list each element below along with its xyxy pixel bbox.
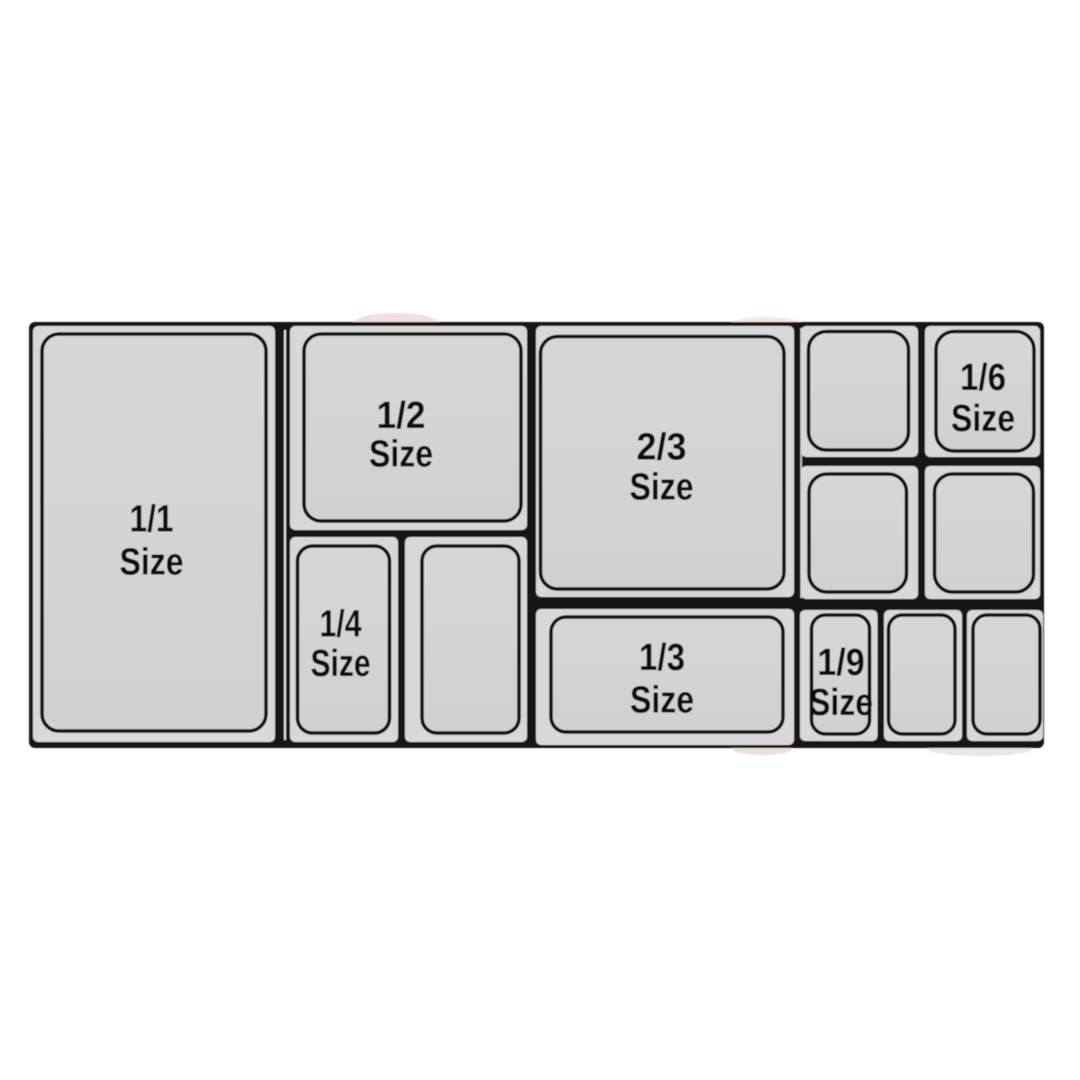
svg-text:Size: Size — [630, 467, 694, 509]
svg-text:1/9: 1/9 — [817, 642, 865, 684]
svg-text:Size: Size — [809, 682, 873, 724]
svg-text:1/3: 1/3 — [639, 637, 685, 679]
svg-text:1/6: 1/6 — [960, 357, 1006, 399]
svg-text:1/1: 1/1 — [130, 499, 174, 541]
svg-text:1/2: 1/2 — [377, 395, 426, 437]
svg-text:Size: Size — [311, 643, 371, 685]
svg-text:Size: Size — [951, 398, 1015, 440]
svg-text:Size: Size — [120, 542, 184, 584]
svg-text:Size: Size — [369, 434, 433, 476]
svg-text:1/4: 1/4 — [320, 604, 362, 646]
svg-text:2/3: 2/3 — [637, 427, 687, 469]
svg-text:Size: Size — [630, 680, 694, 722]
